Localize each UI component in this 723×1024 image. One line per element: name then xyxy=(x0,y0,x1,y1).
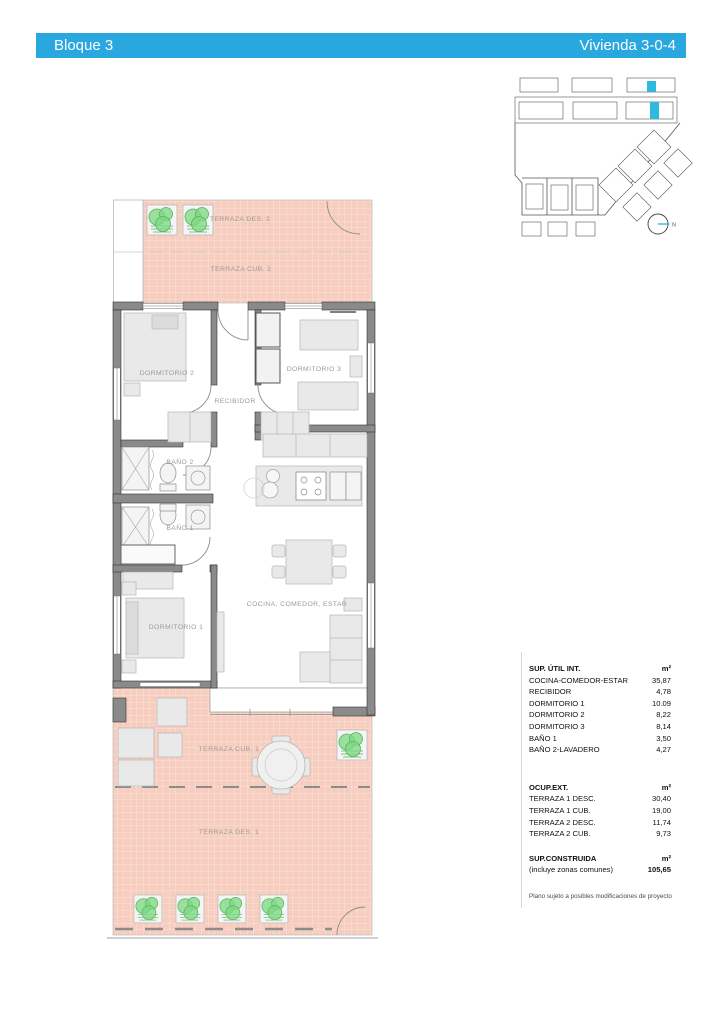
site-key-plan: N xyxy=(495,75,710,250)
room-label: COCINA, COMEDOR, ESTAR xyxy=(247,601,347,608)
room-label: DORMITORIO 1 xyxy=(149,624,204,631)
bath1-door-arc xyxy=(182,537,210,565)
kitchen-furniture xyxy=(244,434,367,506)
section-title: OCUP.EXT. xyxy=(529,782,568,794)
highlight-balcony xyxy=(647,81,656,92)
bedroom-1-furniture xyxy=(122,572,224,673)
bedroom2-door-arc xyxy=(183,385,211,413)
table-row: BAÑO 2-LAVADERO 4,27 xyxy=(529,744,671,756)
cooktop xyxy=(296,472,326,500)
balcony-strips-top xyxy=(520,78,675,92)
title-bar: Bloque 3 Vivienda 3-0-4 xyxy=(36,33,686,58)
plant-icon xyxy=(218,895,246,923)
plant-icon xyxy=(260,895,288,923)
disclaimer-note: Plano sujeto a posibles modificaciones d… xyxy=(529,893,672,900)
bedroom-2-furniture xyxy=(124,313,186,396)
table-row: DORMITORIO 1 10.09 xyxy=(529,698,671,710)
table-row: DORMITORIO 2 8,22 xyxy=(529,709,671,721)
unit-label: m² xyxy=(662,853,671,865)
room-label: TERRAZA CUB. 2 xyxy=(211,266,272,273)
block-title: Bloque 3 xyxy=(54,37,113,54)
built-area-section: SUP.CONSTRUIDA m² (incluye zonas comunes… xyxy=(529,853,671,876)
table-row: TERRAZA 1 DESC. 30,40 xyxy=(529,793,671,805)
room-label: TERRAZA CUB. 1 xyxy=(199,746,260,753)
plan-sheet: Bloque 3 Vivienda 3-0-4 xyxy=(0,0,723,1024)
bedroom-3-furniture xyxy=(256,312,362,410)
side-strip xyxy=(114,200,144,303)
divider xyxy=(521,652,522,908)
unit-label: m² xyxy=(662,663,671,675)
entry-door-arc xyxy=(218,310,248,340)
room-label: TERRAZA DES. 1 xyxy=(199,829,259,836)
plant-icon xyxy=(176,895,204,923)
bathroom-2-fixtures xyxy=(122,447,210,491)
section-title: SUP.CONSTRUIDA xyxy=(529,853,596,865)
table-row: DORMITORIO 3 8,14 xyxy=(529,721,671,733)
plant-icon xyxy=(183,205,213,235)
plant-icon xyxy=(147,205,177,235)
exterior-areas-section: OCUP.EXT. m² TERRAZA 1 DESC. 30,40 TERRA… xyxy=(529,782,671,840)
north-arrow-icon: N xyxy=(648,214,676,234)
section-title: SUP. ÚTIL INT. xyxy=(529,663,580,675)
table-row: TERRAZA 2 CUB. 9,73 xyxy=(529,828,671,840)
sofa xyxy=(300,598,362,683)
north-label: N xyxy=(672,223,676,229)
highlighted-unit xyxy=(650,102,659,119)
floor-plan: TERRAZA DES. 2 TERRAZA CUB. 2 xyxy=(100,190,390,950)
table-row: TERRAZA 2 DESC. 11,74 xyxy=(529,817,671,829)
bathroom-1-fixtures xyxy=(121,504,210,564)
table-row: BAÑO 1 3,50 xyxy=(529,733,671,745)
unit-title: Vivienda 3-0-4 xyxy=(580,37,676,54)
bedroom3-door-arc xyxy=(258,385,287,414)
interior-areas-section: SUP. ÚTIL INT. m² COCINA-COMEDOR-ESTAR 3… xyxy=(529,663,671,756)
plant-icon xyxy=(134,895,162,923)
table-row: COCINA-COMEDOR-ESTAR 35,87 xyxy=(529,675,671,687)
room-label: RECIBIDOR xyxy=(214,398,255,405)
lower-wing-units xyxy=(526,184,593,210)
room-label: BAÑO 1 xyxy=(166,523,193,532)
area-summary: SUP. ÚTIL INT. m² COCINA-COMEDOR-ESTAR 3… xyxy=(529,663,671,876)
room-label: BAÑO 2 xyxy=(166,457,193,466)
room-label: DORMITORIO 2 xyxy=(140,370,195,377)
table-row: TERRAZA 1 CUB. 19,00 xyxy=(529,805,671,817)
pillar xyxy=(113,698,126,722)
room-label: DORMITORIO 3 xyxy=(287,366,342,373)
dining-set xyxy=(272,540,346,584)
room-label: TERRAZA DES. 2 xyxy=(210,216,270,223)
unit-label: m² xyxy=(662,782,671,794)
balcony-strips-bottom xyxy=(522,222,595,236)
plant-icon xyxy=(337,730,367,760)
table-row: (incluye zonas comunes) 105,65 xyxy=(529,864,671,876)
table-row: RECIBIDOR 4,78 xyxy=(529,686,671,698)
building-band xyxy=(515,97,677,123)
